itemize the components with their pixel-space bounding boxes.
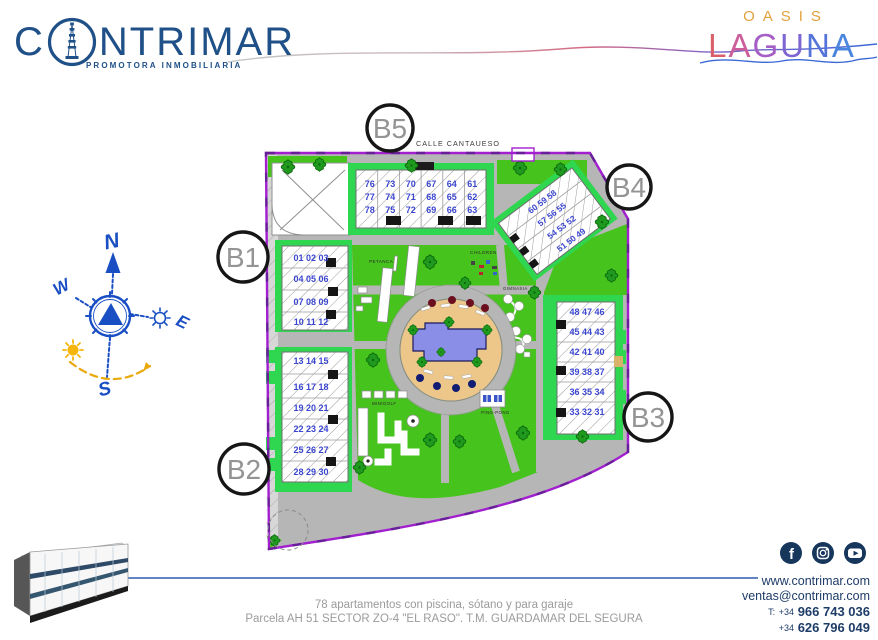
contact-phone2[interactable]: +34 626 796 049 [742, 620, 870, 636]
social-icons: f [742, 540, 870, 572]
svg-text:B1: B1 [226, 242, 260, 273]
b1-units-row2: 04 05 06 [293, 274, 328, 284]
swimming-pool [413, 323, 486, 361]
svg-text:B4: B4 [612, 172, 646, 203]
b3-units-row2: 45 44 43 [569, 327, 604, 337]
compass-s: S [96, 378, 114, 402]
facebook-icon[interactable]: f [780, 542, 802, 564]
b2-units-row2: 16 17 18 [293, 382, 328, 392]
footer-line2: Parcela AH 51 SECTOR ZO-4 "EL RASO". T.M… [150, 612, 738, 626]
b2-units-row3: 19 20 21 [293, 403, 328, 413]
b1-units-row1: 01 02 03 [293, 253, 328, 263]
oasis-text: OASIS [692, 8, 872, 25]
badge-b5: B5 [367, 105, 413, 151]
compass-rose: N W E S [50, 229, 192, 402]
contact-email[interactable]: ventas@contrimar.com [742, 589, 870, 604]
utility-box [512, 148, 534, 161]
b2-units-row5: 25 26 27 [293, 445, 328, 455]
contact-web[interactable]: www.contrimar.com [742, 574, 870, 589]
gym-label: GIMNASIA [503, 286, 528, 291]
b3-units-row3: 42 41 40 [569, 347, 604, 357]
compass-w: W [50, 274, 75, 299]
svg-text:B5: B5 [373, 113, 407, 144]
contact-phone1[interactable]: T: +34 966 743 036 [742, 604, 870, 620]
block-b3: 48 47 46 45 44 43 42 41 40 39 38 37 36 3… [543, 295, 623, 440]
brand-letter-c: C [14, 20, 45, 65]
b5-units-row3: 78 75 72 69 66 63 [365, 205, 478, 215]
contrimar-logo: C NTRIMAR PROMOTORA INMOBILIARIA [14, 16, 295, 70]
block-b5: 76 73 70 67 64 61 77 74 71 68 65 62 78 7… [348, 162, 494, 235]
brand-wordmark: NTRIMAR [99, 20, 295, 65]
oasis-laguna-logo: OASIS LAGUNA [692, 8, 872, 65]
laguna-text: LAGUNA [692, 27, 872, 65]
svg-text:B2: B2 [227, 454, 261, 485]
pingpong-label: PING-PONG [481, 410, 510, 415]
badge-b1: B1 [218, 232, 268, 282]
building-render [14, 543, 128, 623]
b5-units-row2: 77 74 71 68 65 62 [365, 192, 478, 202]
compass-e: E [173, 311, 192, 333]
b3-units-row1: 48 47 46 [569, 307, 604, 317]
b5-units-row1: 76 73 70 67 64 61 [365, 179, 478, 189]
b2-units-row4: 22 23 24 [293, 424, 328, 434]
minigolf-label: MINIGOLF [372, 401, 396, 406]
block-b2: 13 14 15 16 17 18 19 20 21 22 23 24 25 2… [275, 347, 352, 492]
petanca-label: PETANCA [369, 259, 394, 264]
youtube-icon[interactable] [844, 542, 866, 564]
block-b1: 01 02 03 04 05 06 07 08 09 10 11 12 [275, 240, 352, 332]
compass-east-sun-icon [150, 308, 170, 328]
b1-units-row3: 07 08 09 [293, 297, 328, 307]
badge-b2: B2 [219, 444, 269, 494]
compass-n: N [102, 229, 122, 255]
b3-units-row4: 39 38 37 [569, 367, 604, 377]
footer-line1: 78 apartamentos con piscina, sótano y pa… [150, 598, 738, 612]
b3-units-row6: 33 32 31 [569, 407, 604, 417]
b1-units-row4: 10 11 12 [294, 317, 329, 327]
svg-text:B3: B3 [631, 402, 665, 433]
b2-units-row1: 13 14 15 [293, 356, 328, 366]
footer-description: 78 apartamentos con piscina, sótano y pa… [150, 598, 738, 626]
b2-units-row6: 28 29 30 [293, 467, 328, 477]
instagram-icon[interactable] [812, 542, 834, 564]
badge-b4: B4 [607, 165, 651, 209]
street-label: CALLE CANTAUESO [416, 139, 500, 148]
children-label: CHILDREN [470, 250, 497, 255]
access-ramp-structure [272, 163, 350, 235]
contact-block: f www.contrimar.com ventas@contrimar.com… [742, 540, 870, 636]
site-plan: 76 73 70 67 64 61 77 74 71 68 65 62 78 7… [218, 105, 672, 550]
brochure-page: C NTRIMAR PROMOTORA INMOBILIARIA OASIS L… [0, 0, 878, 640]
b3-units-row5: 36 35 34 [569, 387, 604, 397]
badge-b3: B3 [624, 393, 672, 441]
